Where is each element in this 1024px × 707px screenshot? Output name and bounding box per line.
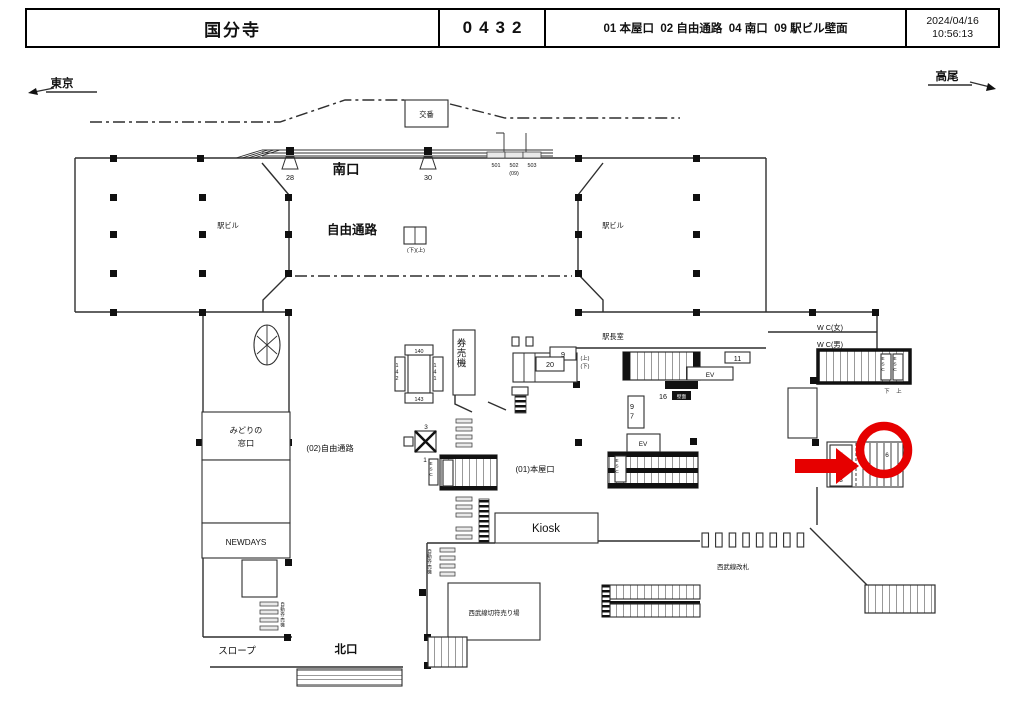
road-boundary: 交番 <box>90 100 680 127</box>
sign-1-pillar: 1 <box>423 457 427 464</box>
ekibiru-east-label: 駅ビル <box>602 221 624 230</box>
sign-11-box: 11 <box>725 352 750 363</box>
esc-label: ESC <box>428 461 433 478</box>
esc-label: ESC <box>880 356 885 373</box>
koban-label: 交番 <box>419 110 433 119</box>
sign-143: 143 <box>415 397 424 403</box>
ekibiru-west-label: 駅ビル <box>217 221 239 230</box>
midori-no-madoguchi: みどりの 窓口 <box>202 412 290 460</box>
ev-lower-label: EV <box>639 441 648 448</box>
takao-label: 高尾 <box>936 69 959 83</box>
empty-room <box>202 460 290 523</box>
updown-label: (下)(上) <box>407 246 425 254</box>
sign-20: 20 <box>546 360 554 369</box>
gate-lane <box>479 499 489 543</box>
sign-501: 501 <box>492 163 501 169</box>
spiral-stair <box>254 325 280 365</box>
slope-label: スロープ <box>218 646 256 657</box>
central-stairs: ESC <box>428 455 497 490</box>
up-kanji: 上 <box>896 387 902 395</box>
wc-men-label: W C(男) <box>817 340 843 349</box>
station-map-page: 国分寺 0432 01 本屋口 02 自由通路 04 南口 09 駅ビル壁面 2… <box>0 0 1024 707</box>
down-kanji: 下 <box>884 388 890 395</box>
sign-16: 16 <box>659 392 667 401</box>
sign-141: 141 <box>432 363 438 383</box>
sign-30: 30 <box>424 173 432 182</box>
newdays-label: NEWDAYS <box>226 538 267 547</box>
sign-09: (09) <box>509 171 519 177</box>
left-arrow-icon <box>28 88 38 95</box>
concourse-gate-updown: (下)(上) <box>404 227 426 254</box>
ticket-machines-center: 自動券売機 <box>427 548 455 576</box>
minamiguchi-label: 南口 <box>333 161 360 177</box>
seibu-gates <box>702 533 804 547</box>
wc-women-label: W C(女) <box>817 323 843 332</box>
jidou-kenbaiki-label: 自動券売機 <box>427 548 433 575</box>
pillar-ads-140: 140 143 142 141 <box>394 345 443 403</box>
seibu-ticket-office: 西武線切符売り場 <box>448 583 540 640</box>
southeast-stairs <box>865 585 935 613</box>
sign-11: 11 <box>734 354 741 363</box>
midori-line1: みどりの <box>230 426 263 435</box>
wall-signs-501-503: 501 502 503 (09) <box>487 152 541 177</box>
jiyu-tsuro-label: 自由通路 <box>327 222 378 237</box>
seibu-kippu-label: 西武線切符売り場 <box>468 608 520 617</box>
north-stairs <box>428 637 467 667</box>
speaker-icon <box>282 157 298 169</box>
north-wide-steps <box>297 669 402 686</box>
esc-label: ESC <box>614 458 619 475</box>
ticket-machine-area: 券売機 <box>453 330 506 412</box>
tokyo-label: 東京 <box>51 76 74 90</box>
down-label: (下) <box>581 363 590 370</box>
speaker-icon <box>420 157 436 169</box>
kenbaiki-label: 券売機 <box>455 337 467 368</box>
sign-142: 142 <box>394 363 400 383</box>
elevator-lower: EV <box>627 434 660 452</box>
jidou-kenbaiki-label: 自動券売機 <box>280 601 286 628</box>
x-pillar-signs: 3 1 <box>404 424 436 464</box>
kabemen-label: 壁面 <box>677 393 687 400</box>
sign-9: 9 <box>561 350 565 359</box>
sign-6: 6 <box>885 452 889 459</box>
sign-97-box: 97 <box>628 396 645 428</box>
kiosk-label: Kiosk <box>532 523 560 535</box>
small-room <box>242 560 277 597</box>
direction-takao: 高尾 <box>928 69 996 91</box>
sign-140: 140 <box>415 349 424 355</box>
up-label: (上) <box>581 354 590 362</box>
kiosk-shop: Kiosk <box>495 513 598 543</box>
direction-tokyo: 東京 <box>28 76 97 95</box>
ev-upper-label: EV <box>706 372 715 379</box>
midori-line2: 窓口 <box>238 438 254 448</box>
sign-3-pillar: 3 <box>424 424 428 431</box>
lower-escalator: ESC <box>608 452 698 488</box>
sign-28: 28 <box>286 173 294 182</box>
kitaguchi-label: 北口 <box>335 642 358 656</box>
seibu-kaisatsu-label: 西武線改札 <box>717 562 750 571</box>
sign-502: 502 <box>510 163 519 169</box>
honya-01-label: (01)本屋口 <box>515 464 554 474</box>
right-arrow-icon <box>986 83 996 91</box>
wc-area: W C(女) W C(男) ESC ESC 下 上 <box>788 323 910 438</box>
sign-503: 503 <box>528 163 537 169</box>
sign-97: 97 <box>628 402 637 421</box>
floor-plan: 東京 高尾 交番 <box>0 0 1024 707</box>
room-box <box>788 388 817 438</box>
jiyu-tsuro-02-label: (02)自由通路 <box>306 443 353 453</box>
seibu-escalator <box>602 585 700 617</box>
newdays-shop: NEWDAYS <box>202 523 290 558</box>
ticket-machines-left: 自動券売機 <box>260 601 286 630</box>
ekichoshitsu-label: 駅長室 <box>602 332 624 341</box>
esc-label: ESC <box>892 356 897 373</box>
gate-lane <box>515 396 526 413</box>
